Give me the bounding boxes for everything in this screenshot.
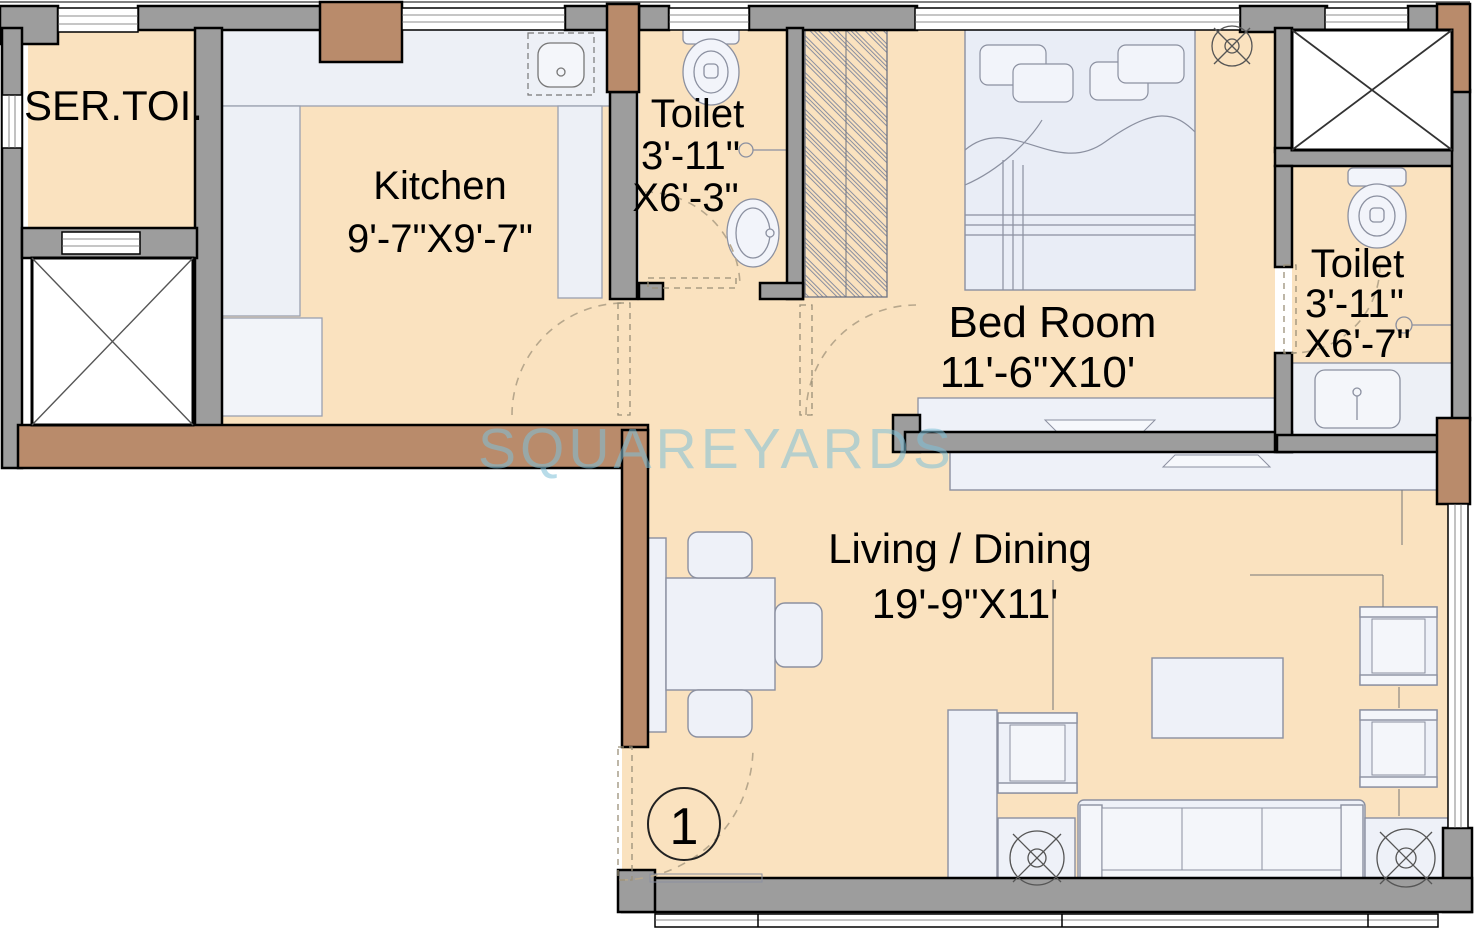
pillow [1118, 45, 1184, 83]
pillow [1013, 64, 1073, 102]
bedroom-tv [1045, 420, 1155, 432]
window [1448, 504, 1468, 828]
window [915, 8, 1240, 30]
window [62, 232, 140, 254]
bedroom-label: Bed Room [945, 300, 1160, 346]
kitchen-counter-right [558, 106, 602, 298]
unit-marker-number: 1 [654, 797, 714, 857]
service-toilet-label: SER.TOI. [24, 84, 202, 128]
toilet-right-dim-1: 3'-11" [1282, 283, 1427, 325]
window [2, 95, 22, 148]
wall [1275, 28, 1292, 152]
wall [760, 283, 803, 299]
watermark: SQUAREYARDS [478, 416, 998, 482]
wall [618, 870, 655, 912]
window [58, 8, 138, 32]
floor-plan: SER.TOI. Kitchen 9'-7"X9'-7" Toilet 3'-1… [0, 0, 1475, 929]
kitchen-label: Kitchen [340, 165, 540, 207]
wall [1452, 90, 1470, 420]
dining-chair-bottom [688, 690, 752, 737]
refrigerator [222, 318, 322, 416]
kitchen-counter-left [222, 106, 300, 316]
wall [787, 28, 803, 299]
wall [2, 28, 22, 468]
window [1325, 8, 1408, 30]
kitchen-dimensions: 9'-7"X9'-7" [320, 218, 560, 260]
kitchen-sink [538, 43, 584, 87]
column [1437, 418, 1470, 504]
window [655, 914, 1438, 927]
wall [639, 6, 669, 30]
side-unit [948, 710, 997, 900]
dining-chair-right [775, 603, 822, 667]
toilet-right-label: Toilet [1285, 243, 1430, 285]
toilet-top-label: Toilet [625, 93, 770, 135]
passage-floor [610, 299, 803, 430]
wall [565, 6, 609, 30]
toilet-right-dim-2: X6'-7" [1285, 323, 1430, 365]
wall [749, 6, 917, 30]
dining-table [666, 578, 775, 690]
wall [138, 6, 324, 30]
service-toilet-floor [28, 30, 195, 228]
living-tv [1163, 455, 1270, 467]
window [669, 8, 749, 30]
bedroom-dimensions: 11'-6"X10' [930, 350, 1145, 396]
armchair-right-2 [1360, 710, 1437, 787]
living-dining-dimensions: 19'-9"X11' [845, 582, 1085, 626]
center-table [1152, 658, 1283, 738]
wc-bowl [1348, 184, 1406, 248]
window [402, 8, 565, 30]
entry-floor [622, 747, 648, 878]
armchair-left [998, 713, 1077, 793]
column [607, 4, 639, 92]
column [320, 2, 402, 62]
tap [766, 229, 774, 237]
wall [1408, 6, 1439, 32]
living-dining-label: Living / Dining [820, 527, 1100, 571]
wall [639, 283, 663, 299]
toilet-top-dim-1: 3'-11" [618, 135, 763, 177]
wall [1277, 435, 1457, 452]
toilet-top-dim-2: X6'-3" [613, 177, 758, 219]
dining-chair-top [688, 532, 752, 578]
armchair-right-1 [1360, 607, 1437, 685]
wc-tank [1348, 168, 1406, 186]
